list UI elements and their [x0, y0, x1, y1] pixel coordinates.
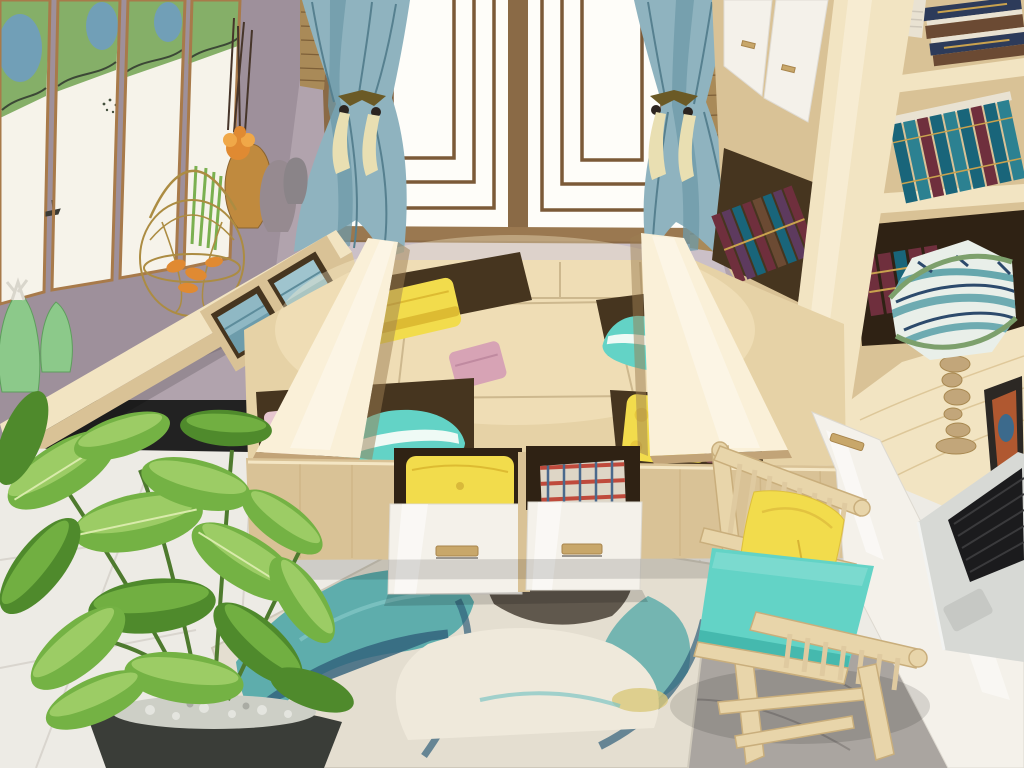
chair-rail-cap [854, 500, 870, 516]
painting-art-blue [0, 14, 42, 82]
small-vase [284, 158, 308, 205]
drawer-handle [562, 544, 602, 554]
picture-art-detail [998, 414, 1014, 442]
room-scene [0, 0, 1024, 768]
room-illustration [0, 0, 1024, 768]
stacked-books [921, 0, 1024, 67]
drawer-handle [436, 546, 478, 556]
window-mullion [508, 0, 528, 238]
chair-arm-cap [909, 649, 927, 667]
painting-art-blue [86, 2, 118, 50]
painting-art-blue [154, 2, 182, 42]
